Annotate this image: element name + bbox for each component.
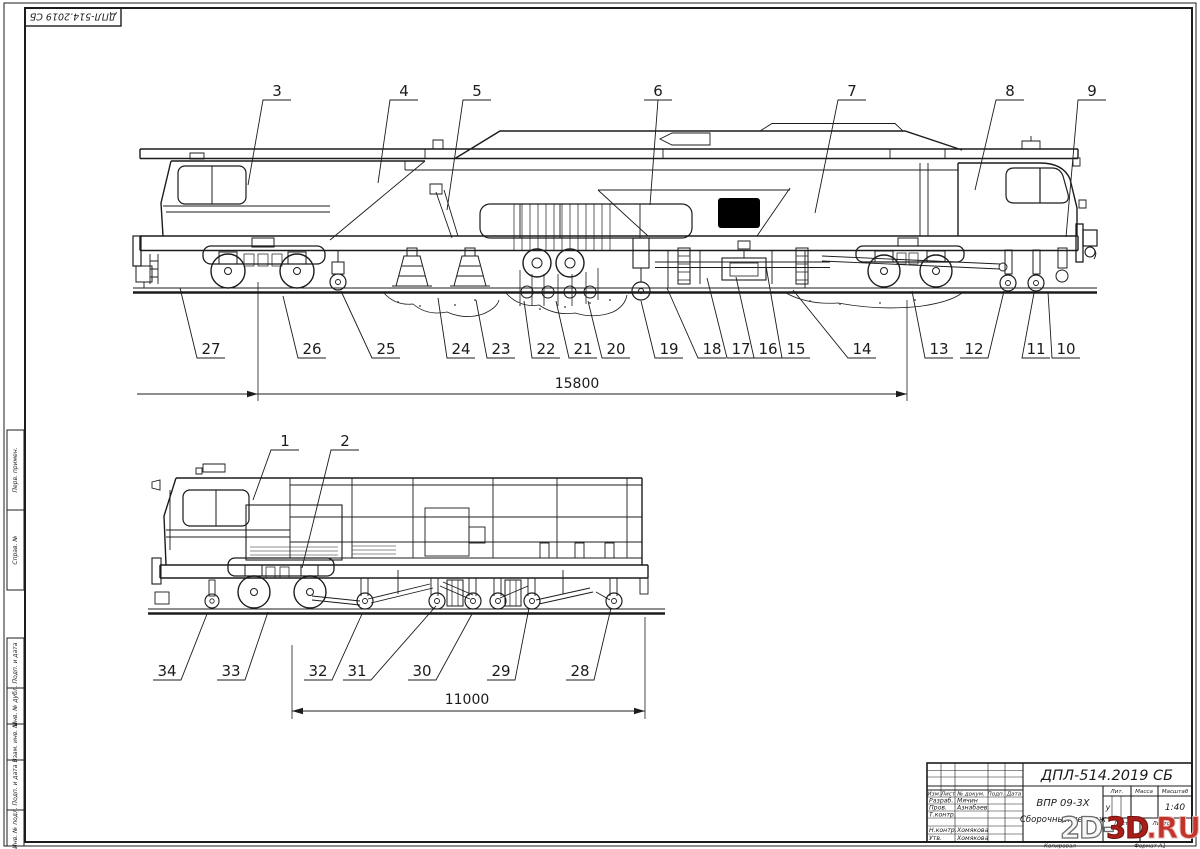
callout-5: 5 bbox=[447, 82, 491, 210]
svg-text:3: 3 bbox=[272, 82, 282, 100]
watermark-3d: 3D bbox=[1106, 811, 1148, 845]
drawing-sheet: ДПЛ-514.2019 СБ Перв. примен. Справ. № П… bbox=[0, 0, 1200, 849]
callout-21: 21 bbox=[556, 301, 597, 358]
svg-text:2: 2 bbox=[340, 432, 350, 450]
svg-text:31: 31 bbox=[347, 662, 366, 680]
svg-text:32: 32 bbox=[308, 662, 327, 680]
svg-text:30: 30 bbox=[412, 662, 431, 680]
right-bogie bbox=[856, 238, 964, 287]
bottom-view-callouts: 1 2 34 33 32 31 30 29 28 bbox=[153, 432, 611, 680]
svg-text:21: 21 bbox=[573, 340, 592, 358]
right-end-gear bbox=[1000, 224, 1097, 291]
svg-text:23: 23 bbox=[491, 340, 510, 358]
lining-jacks bbox=[392, 248, 490, 286]
dimension-11000-text: 11000 bbox=[445, 692, 490, 708]
callout-3: 3 bbox=[248, 82, 291, 185]
tb-mass-label: Масса bbox=[1135, 789, 1153, 795]
tb-row-tkontr: Т.контр. bbox=[929, 812, 956, 819]
callout-4: 4 bbox=[378, 82, 418, 183]
callout-26: 26 bbox=[283, 296, 326, 358]
tb-product-name: ВПР 09-3Х bbox=[1036, 798, 1090, 809]
tb-razrab-name: Мячин bbox=[957, 798, 978, 805]
top-view bbox=[133, 124, 1097, 317]
callout-8: 8 bbox=[975, 82, 1024, 190]
svg-text:12: 12 bbox=[964, 340, 983, 358]
svg-text:19: 19 bbox=[659, 340, 678, 358]
callout-9: 9 bbox=[1066, 82, 1106, 237]
callout-20: 20 bbox=[588, 301, 630, 358]
watermark-ru: .RU bbox=[1146, 811, 1200, 845]
bottom-view bbox=[148, 464, 665, 614]
dark-vent-panel bbox=[718, 198, 760, 228]
margin-podp-data-2: Подп. и дата bbox=[12, 764, 19, 805]
svg-text:10: 10 bbox=[1056, 340, 1075, 358]
callout-28: 28 bbox=[566, 608, 611, 680]
left-bogie bbox=[203, 238, 325, 288]
svg-text:29: 29 bbox=[491, 662, 510, 680]
svg-text:11: 11 bbox=[1026, 340, 1045, 358]
drawing-canvas: ДПЛ-514.2019 СБ Перв. примен. Справ. № П… bbox=[0, 0, 1200, 849]
tb-row-prov: Пров. bbox=[929, 805, 947, 812]
svg-text:13: 13 bbox=[929, 340, 948, 358]
callout-30: 30 bbox=[408, 614, 472, 680]
svg-text:22: 22 bbox=[536, 340, 555, 358]
svg-text:9: 9 bbox=[1087, 82, 1097, 100]
svg-text:16: 16 bbox=[758, 340, 777, 358]
tb-scale-label: Масштаб bbox=[1162, 789, 1189, 795]
engine-compartment bbox=[246, 505, 614, 560]
svg-text:15: 15 bbox=[786, 340, 805, 358]
callout-11: 11 bbox=[1022, 293, 1050, 358]
svg-text:34: 34 bbox=[157, 662, 176, 680]
tb-nkontr-name: Хомякова bbox=[956, 827, 989, 834]
svg-text:28: 28 bbox=[570, 662, 589, 680]
callout-6: 6 bbox=[644, 82, 672, 205]
callout-1: 1 bbox=[253, 432, 299, 500]
svg-text:20: 20 bbox=[606, 340, 625, 358]
svg-text:8: 8 bbox=[1005, 82, 1015, 100]
margin-vzam-inv: Взам. инв. № bbox=[12, 722, 19, 763]
tb-row-utv: Утв. bbox=[929, 835, 942, 842]
corner-stamp-text: ДПЛ-514.2019 СБ bbox=[29, 11, 117, 22]
callout-10: 10 bbox=[1048, 292, 1080, 358]
callout-7: 7 bbox=[815, 82, 866, 213]
svg-text:5: 5 bbox=[472, 82, 482, 100]
svg-text:4: 4 bbox=[399, 82, 409, 100]
measuring-cylinder bbox=[632, 238, 650, 300]
tb-lit-label: Лит. bbox=[1110, 789, 1124, 795]
callout-23: 23 bbox=[476, 300, 515, 358]
margin-podp-data-1: Подп. и дата bbox=[12, 642, 19, 683]
callout-13: 13 bbox=[912, 291, 953, 358]
margin-perv-primen: Перв. примен. bbox=[12, 447, 19, 492]
svg-text:26: 26 bbox=[302, 340, 321, 358]
svg-text:24: 24 bbox=[451, 340, 470, 358]
svg-text:17: 17 bbox=[731, 340, 750, 358]
svg-text:6: 6 bbox=[653, 82, 663, 100]
left-end-gear bbox=[133, 236, 158, 288]
svg-text:14: 14 bbox=[852, 340, 871, 358]
tamping-unit bbox=[514, 204, 610, 306]
tb-utv-name: Хомякова bbox=[956, 835, 989, 842]
callout-33: 33 bbox=[217, 612, 268, 680]
svg-text:1: 1 bbox=[280, 432, 290, 450]
svg-text:33: 33 bbox=[221, 662, 240, 680]
ballast-dots bbox=[397, 299, 916, 310]
sheet-borders bbox=[4, 3, 1196, 846]
callout-24: 24 bbox=[438, 298, 475, 358]
callout-25: 25 bbox=[341, 291, 400, 358]
callout-12: 12 bbox=[960, 291, 1004, 358]
svg-text:27: 27 bbox=[201, 340, 220, 358]
dimension-15800-text: 15800 bbox=[555, 376, 600, 392]
tb-col-podp: Подп. bbox=[988, 792, 1005, 798]
corner-stamp: ДПЛ-514.2019 СБ bbox=[25, 8, 121, 26]
right-cab-window bbox=[1006, 168, 1068, 203]
margin-stamps: Перв. примен. Справ. № Подп. и дата Инв.… bbox=[7, 430, 24, 849]
tb-col-data: Дата bbox=[1006, 792, 1022, 798]
svg-text:25: 25 bbox=[376, 340, 395, 358]
guide-wheel bbox=[330, 250, 346, 290]
margin-inv-podl: Инв. № подл. bbox=[12, 807, 19, 848]
dimension-11000: 11000 bbox=[292, 617, 645, 719]
svg-text:7: 7 bbox=[847, 82, 857, 100]
callout-22: 22 bbox=[524, 301, 560, 358]
tb-designation: ДПЛ-514.2019 СБ bbox=[1040, 768, 1173, 784]
margin-inv-dubl: Инв. № дубл. bbox=[12, 685, 19, 726]
watermark: 2D- 3D .RU bbox=[1060, 811, 1200, 845]
callout-34: 34 bbox=[153, 614, 207, 680]
callout-2: 2 bbox=[302, 432, 359, 568]
callout-29: 29 bbox=[487, 608, 529, 680]
callout-27: 27 bbox=[180, 288, 225, 358]
svg-text:18: 18 bbox=[702, 340, 721, 358]
tb-row-razrab: Разраб. bbox=[929, 797, 953, 805]
tb-prov-name: Азнабаев bbox=[956, 804, 988, 812]
margin-sprav-no: Справ. № bbox=[12, 535, 19, 564]
top-view-callouts: 3 4 5 6 7 8 9 27 26 25 24 23 22 21 20 19… bbox=[180, 82, 1106, 358]
tb-row-nkontr: Н.контр. bbox=[929, 827, 957, 834]
